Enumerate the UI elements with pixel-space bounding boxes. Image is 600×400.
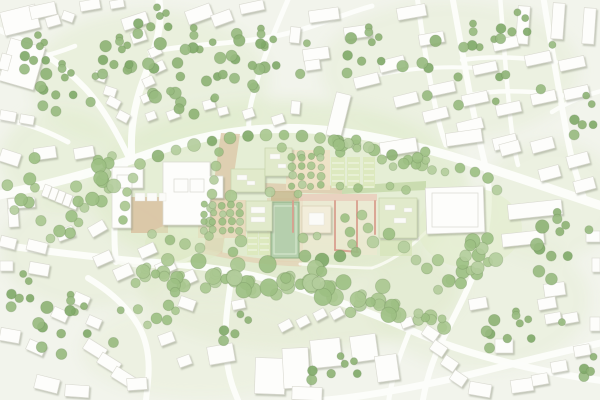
tree <box>15 193 28 206</box>
tree <box>523 28 531 36</box>
tree <box>402 186 411 195</box>
tree <box>345 307 356 318</box>
tree <box>522 14 529 21</box>
tree <box>65 228 76 239</box>
tree <box>398 158 409 169</box>
tree <box>341 214 350 223</box>
tree <box>73 196 84 207</box>
tree <box>211 210 217 216</box>
tree <box>108 337 118 347</box>
tree <box>317 172 325 180</box>
tree <box>525 316 532 323</box>
tree <box>21 37 33 49</box>
tree <box>227 270 243 286</box>
tree <box>128 173 138 183</box>
tree <box>163 300 174 311</box>
tree <box>56 349 67 360</box>
tree <box>110 60 119 69</box>
tree <box>317 154 324 161</box>
building <box>582 8 596 45</box>
tree <box>586 367 595 376</box>
tree <box>35 81 46 92</box>
tree <box>189 109 200 120</box>
building <box>573 344 591 358</box>
tree <box>433 285 442 294</box>
tree <box>375 34 382 41</box>
tree <box>465 240 476 251</box>
tree <box>546 251 556 261</box>
tree <box>42 56 50 64</box>
tree <box>2 180 13 191</box>
tree <box>508 27 517 36</box>
tree <box>492 98 499 105</box>
tree <box>219 326 229 336</box>
building <box>550 360 568 374</box>
tree <box>190 31 199 40</box>
tree <box>34 31 41 38</box>
tree <box>492 185 502 195</box>
tree <box>243 131 254 142</box>
tree <box>148 230 157 239</box>
tree <box>149 90 162 103</box>
tree <box>533 265 545 277</box>
tree <box>363 142 374 153</box>
tree <box>354 184 363 193</box>
rooftop-element <box>270 154 280 159</box>
tree <box>516 320 523 327</box>
tree <box>151 270 160 279</box>
tree <box>236 218 243 225</box>
tree <box>61 74 68 81</box>
rooftop-element <box>159 193 166 201</box>
tree <box>117 307 124 314</box>
tree <box>348 240 357 249</box>
tree <box>414 309 423 318</box>
tree <box>146 22 155 31</box>
tree <box>70 181 82 193</box>
tree <box>195 243 205 253</box>
tree <box>54 225 66 237</box>
rooftop-element <box>394 218 406 223</box>
tree <box>455 163 465 173</box>
tree <box>295 69 305 79</box>
tree <box>119 216 128 225</box>
tree <box>281 273 292 284</box>
green-roof-building <box>231 169 265 192</box>
tree <box>40 68 52 80</box>
tree <box>227 201 234 208</box>
tree <box>255 39 265 49</box>
tree <box>224 132 236 144</box>
tree <box>442 274 455 287</box>
building <box>551 3 565 40</box>
tree <box>307 162 315 170</box>
tree <box>83 329 91 337</box>
tree <box>288 153 296 161</box>
tree <box>165 235 175 245</box>
tree <box>512 311 520 319</box>
tree <box>24 173 36 185</box>
tree <box>484 343 494 353</box>
tree <box>350 358 357 365</box>
tree <box>272 61 280 69</box>
building <box>65 384 90 398</box>
tree <box>353 370 361 378</box>
tree <box>235 235 247 247</box>
tree <box>289 171 297 179</box>
tree <box>307 183 314 190</box>
tree <box>455 278 466 289</box>
tree <box>387 150 398 161</box>
tree <box>201 211 208 218</box>
tree <box>503 334 512 343</box>
tree <box>453 100 463 110</box>
tree <box>191 253 206 268</box>
tree <box>298 163 305 170</box>
tree <box>57 329 66 338</box>
tree <box>236 209 244 217</box>
tree <box>422 90 432 100</box>
rooftop-element <box>251 217 265 222</box>
tree <box>350 291 366 307</box>
tree <box>481 326 492 337</box>
tree <box>381 307 397 323</box>
tree <box>298 233 308 243</box>
tree <box>377 155 387 165</box>
tree <box>459 42 469 52</box>
tree <box>307 172 314 179</box>
rooftop-element <box>247 181 255 185</box>
tree <box>94 171 109 186</box>
building <box>254 357 285 394</box>
tree <box>421 263 432 274</box>
tree <box>357 210 367 220</box>
tree <box>190 24 197 31</box>
tree <box>228 247 238 257</box>
tree <box>228 217 236 225</box>
tree <box>386 182 394 190</box>
tree <box>501 70 510 79</box>
tree <box>279 130 289 140</box>
tree <box>489 253 503 267</box>
tree <box>156 12 163 19</box>
tree <box>120 201 130 211</box>
tree <box>237 311 244 318</box>
tree <box>211 94 219 102</box>
tree <box>334 250 346 262</box>
tree <box>46 234 55 243</box>
tree <box>41 301 54 314</box>
tree <box>218 335 228 345</box>
tree <box>172 57 183 68</box>
field-surface <box>271 202 299 258</box>
building <box>127 377 148 390</box>
building <box>310 338 343 369</box>
tree <box>58 64 66 72</box>
tree <box>569 130 579 140</box>
tree <box>36 43 43 50</box>
tree <box>316 266 327 277</box>
rooftop-element <box>135 193 145 201</box>
green-roof-building <box>246 201 272 231</box>
tree <box>236 202 242 208</box>
tree <box>152 150 164 162</box>
tree <box>299 250 311 262</box>
tree <box>367 236 379 248</box>
tree <box>86 97 96 107</box>
tree <box>514 9 521 16</box>
tree <box>341 360 348 367</box>
tree <box>343 50 353 60</box>
tree <box>209 226 216 233</box>
tree <box>170 287 180 297</box>
tree <box>85 192 99 206</box>
tree <box>38 101 48 111</box>
tree <box>174 104 184 114</box>
tree <box>336 182 344 190</box>
tree <box>235 227 242 234</box>
tree <box>133 305 143 315</box>
building <box>0 261 13 271</box>
tree <box>67 69 74 76</box>
tree <box>383 228 395 240</box>
tree <box>180 239 191 250</box>
tree <box>307 375 317 385</box>
tree <box>153 4 160 11</box>
site-plan-canvas <box>0 0 600 400</box>
tree <box>118 46 125 53</box>
tree <box>219 218 227 226</box>
tree <box>454 73 463 82</box>
tree <box>432 254 444 266</box>
tree <box>397 60 409 72</box>
tree <box>375 279 390 294</box>
tree <box>218 202 225 209</box>
tree <box>296 130 308 142</box>
tree <box>562 221 570 229</box>
tree <box>471 261 484 274</box>
tree <box>583 92 590 99</box>
tree <box>470 167 480 177</box>
tree <box>164 23 172 31</box>
tree <box>188 139 201 152</box>
tree <box>308 153 315 160</box>
tree <box>556 227 564 235</box>
green-roof-building <box>265 148 292 176</box>
tree <box>171 145 181 155</box>
tree <box>260 129 272 141</box>
tree <box>135 159 146 170</box>
tree <box>245 316 252 323</box>
tree <box>398 241 410 253</box>
tree <box>530 238 543 251</box>
tree <box>357 57 366 66</box>
tree <box>225 190 237 202</box>
tree <box>342 68 352 78</box>
tree <box>207 136 217 146</box>
tree <box>205 269 221 285</box>
tree <box>288 163 296 171</box>
tree <box>315 133 326 144</box>
tree <box>115 37 123 45</box>
tree <box>20 270 27 277</box>
tree <box>353 144 361 152</box>
tree <box>298 181 306 189</box>
tree <box>125 60 133 68</box>
garden-plot <box>363 157 375 188</box>
tree <box>270 36 277 43</box>
tree <box>588 101 595 108</box>
building <box>282 347 310 388</box>
tree <box>248 61 257 70</box>
tree <box>219 211 226 218</box>
tree <box>308 366 318 376</box>
tree <box>345 32 357 44</box>
tree <box>549 41 556 48</box>
tree <box>66 210 78 222</box>
tree <box>162 315 172 325</box>
building <box>292 386 322 400</box>
tree <box>277 143 287 153</box>
tree <box>231 329 240 338</box>
tree <box>488 314 500 326</box>
tree <box>211 161 221 171</box>
tree <box>229 73 239 83</box>
tree <box>365 28 373 36</box>
building <box>531 373 549 387</box>
tree <box>36 215 47 226</box>
tree <box>200 283 211 294</box>
tree <box>69 91 77 99</box>
tree <box>545 273 557 285</box>
tree <box>159 271 169 281</box>
tree <box>496 24 506 34</box>
tree <box>107 179 121 193</box>
tree <box>336 274 351 289</box>
tree <box>294 190 302 198</box>
tree <box>469 20 476 27</box>
tree <box>97 69 107 79</box>
tree <box>259 256 276 273</box>
tree <box>318 164 325 171</box>
tree <box>26 294 34 302</box>
tree <box>219 227 226 234</box>
tree <box>312 277 325 290</box>
tree <box>80 303 87 310</box>
tree <box>142 58 154 70</box>
building <box>304 59 320 71</box>
tree <box>438 315 446 323</box>
tree <box>226 50 237 61</box>
tree <box>51 91 60 100</box>
tree <box>437 321 450 334</box>
tree <box>411 255 421 265</box>
tree <box>265 187 275 197</box>
tree <box>123 188 132 197</box>
tree <box>363 223 373 233</box>
tree <box>590 353 597 360</box>
tree <box>327 369 336 378</box>
tree <box>589 121 597 129</box>
tree <box>233 35 245 47</box>
tree <box>563 251 572 260</box>
tree <box>257 30 265 38</box>
tree <box>389 163 397 171</box>
tree <box>133 19 143 29</box>
tree <box>345 227 355 237</box>
site-plan <box>0 0 600 400</box>
tree <box>201 201 207 207</box>
tree <box>10 205 19 214</box>
tree <box>51 106 61 116</box>
tree <box>207 189 217 199</box>
tree <box>209 39 216 46</box>
garden-band <box>293 194 377 201</box>
tree <box>20 51 30 61</box>
tree <box>585 226 593 234</box>
building <box>590 317 600 331</box>
tree <box>176 72 185 81</box>
tree <box>314 288 332 306</box>
tree <box>337 353 344 360</box>
tree <box>201 76 211 86</box>
tree <box>333 139 345 151</box>
tree <box>288 183 295 190</box>
tree <box>428 166 437 175</box>
tree <box>535 220 549 234</box>
rooftop-element <box>147 193 157 201</box>
tree <box>377 57 385 65</box>
tree <box>558 319 565 326</box>
tree <box>29 152 40 163</box>
tree <box>209 201 216 208</box>
rooftop-element <box>404 208 412 212</box>
tree <box>417 57 428 68</box>
building <box>374 354 399 383</box>
tree <box>578 120 587 129</box>
tree <box>483 173 494 184</box>
tree <box>441 168 449 176</box>
tree <box>430 35 442 47</box>
tree <box>33 317 45 329</box>
tree <box>209 219 216 226</box>
tree <box>298 173 305 180</box>
rooftop-element <box>251 207 265 213</box>
building <box>290 101 300 115</box>
tree <box>298 154 305 161</box>
tree <box>201 218 208 225</box>
tree <box>154 37 167 50</box>
rooftop-element <box>237 175 247 180</box>
tree <box>200 227 207 234</box>
tree <box>536 84 546 94</box>
tree <box>317 181 324 188</box>
tree <box>180 44 191 55</box>
building <box>510 378 534 394</box>
rooftop-element <box>278 164 286 168</box>
tree <box>161 253 174 266</box>
tree <box>247 80 257 90</box>
tree <box>260 279 278 297</box>
tree <box>552 214 562 224</box>
tree <box>210 176 219 185</box>
tree <box>66 296 75 305</box>
tree <box>226 209 234 217</box>
tree <box>100 40 112 52</box>
tree <box>29 56 38 65</box>
building <box>289 27 301 44</box>
tree <box>133 28 143 38</box>
